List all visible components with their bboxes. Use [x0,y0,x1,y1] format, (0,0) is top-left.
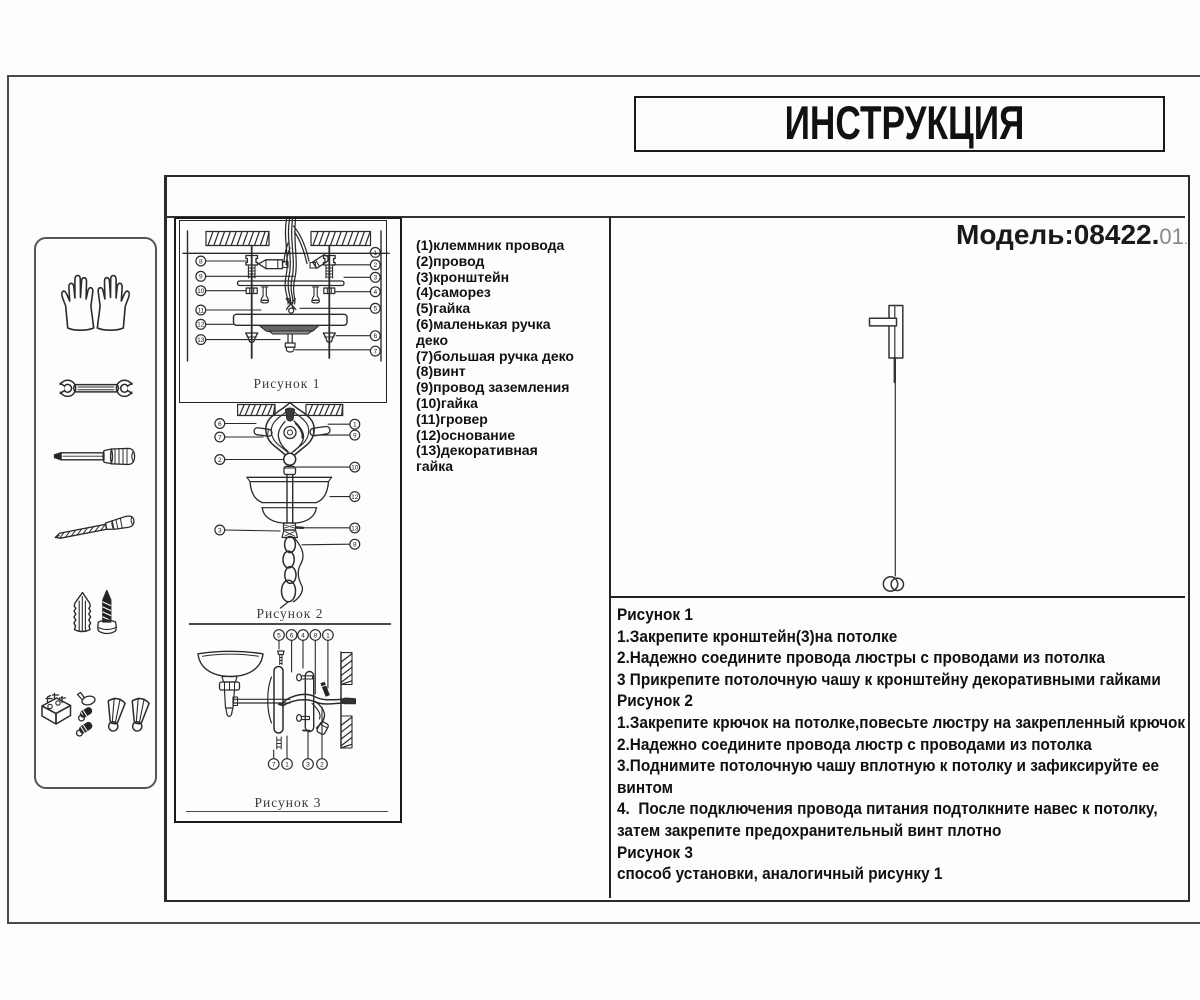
svg-text:12: 12 [351,494,359,501]
svg-text:12: 12 [197,322,205,329]
svg-text:5: 5 [373,306,377,313]
svg-text:13: 13 [197,337,205,344]
svg-text:8: 8 [199,258,203,265]
svg-text:7: 7 [272,761,276,768]
svg-text:10: 10 [351,465,359,472]
svg-text:6: 6 [290,632,294,639]
svg-text:1: 1 [373,250,377,257]
svg-text:2: 2 [320,761,324,768]
svg-text:8: 8 [353,542,357,549]
svg-text:4: 4 [301,632,305,639]
svg-text:5: 5 [277,632,281,639]
svg-text:6: 6 [218,421,222,428]
svg-text:7: 7 [373,349,377,356]
svg-text:8: 8 [313,632,317,639]
svg-text:4: 4 [373,289,377,296]
svg-text:7: 7 [218,434,222,441]
svg-text:3: 3 [373,275,377,282]
svg-text:1: 1 [285,761,289,768]
svg-text:2: 2 [373,262,377,269]
svg-text:13: 13 [351,525,359,532]
svg-text:10: 10 [197,288,205,295]
svg-text:9: 9 [199,274,203,281]
svg-text:6: 6 [373,333,377,340]
svg-text:3: 3 [306,761,310,768]
svg-text:1: 1 [353,422,357,429]
svg-text:1: 1 [326,632,330,639]
svg-text:9: 9 [353,433,357,440]
svg-text:2: 2 [218,457,222,464]
svg-text:11: 11 [197,307,204,314]
svg-text:3: 3 [218,527,222,534]
